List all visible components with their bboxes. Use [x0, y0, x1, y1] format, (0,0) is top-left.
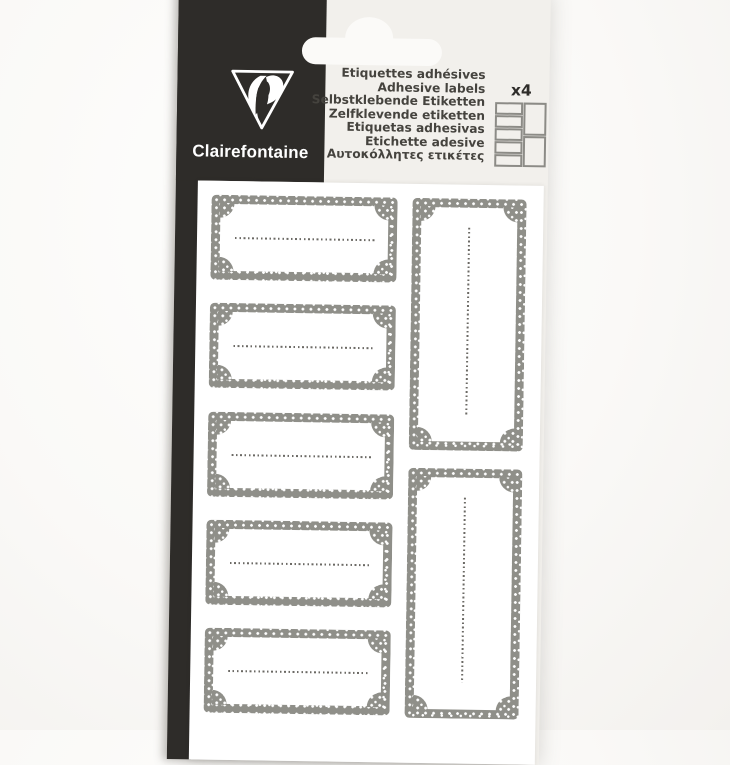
blank-writing-line — [461, 498, 466, 683]
label-corner-ornament — [420, 206, 435, 221]
label-corner-ornament — [212, 690, 227, 705]
label-corner-ornament — [496, 696, 511, 711]
label-corner-ornament — [499, 477, 514, 492]
label-corner-ornament — [368, 584, 383, 599]
brand-wordmark: Clairefontaine — [184, 141, 316, 163]
label-corner-ornament — [367, 692, 382, 707]
brand-panel: Clairefontaine — [176, 0, 327, 182]
product-photo: Clairefontaine Etiquettes adhésives Adhe… — [0, 0, 730, 730]
count-badge: x4 — [493, 81, 549, 100]
label-corner-ornament — [214, 528, 229, 543]
adhesive-label-small — [205, 520, 392, 608]
label-corner-ornament — [503, 207, 518, 222]
label-corner-ornament — [370, 476, 385, 491]
blank-writing-line — [228, 669, 368, 673]
label-corner-ornament — [213, 636, 228, 651]
label-corner-ornament — [217, 365, 232, 380]
sheet-layout-icon — [492, 101, 549, 168]
blank-writing-line — [465, 228, 470, 415]
label-corner-ornament — [371, 422, 386, 437]
label-corner-ornament — [413, 695, 428, 710]
adhesive-label-small — [204, 628, 391, 716]
label-blank-area — [213, 637, 382, 707]
label-corner-ornament — [373, 313, 388, 328]
label-corner-ornament — [218, 311, 233, 326]
blank-writing-line — [232, 454, 372, 458]
blank-writing-line — [233, 345, 373, 349]
adhesive-label-small — [210, 195, 397, 283]
label-corner-ornament — [417, 427, 432, 442]
label-corner-ornament — [215, 474, 230, 489]
label-corner-ornament — [416, 476, 431, 491]
hang-slot — [302, 37, 442, 66]
label-sheet — [189, 180, 544, 764]
label-corner-ornament — [216, 420, 231, 435]
label-blank-area — [219, 204, 388, 274]
label-blank-area — [218, 312, 387, 382]
adhesive-label-small — [209, 303, 396, 391]
label-corner-ornament — [374, 205, 389, 220]
product-title-line: Αυτοκόλλητες ετικέτες — [311, 147, 485, 163]
label-corner-ornament — [500, 428, 515, 443]
blank-writing-line — [230, 561, 370, 565]
package-card: Clairefontaine Etiquettes adhésives Adhe… — [167, 0, 551, 765]
label-blank-area — [214, 529, 383, 599]
label-corner-ornament — [218, 257, 233, 272]
label-blank-area — [216, 421, 385, 491]
label-corner-ornament — [213, 582, 228, 597]
label-corner-ornament — [372, 367, 387, 382]
product-title-block: Etiquettes adhésives Adhesive labels Sel… — [311, 66, 486, 163]
label-blank-area — [418, 207, 518, 442]
label-corner-ornament — [368, 638, 383, 653]
adhesive-label-tall — [409, 198, 527, 452]
blank-writing-line — [235, 237, 375, 241]
label-blank-area — [414, 477, 514, 710]
label-corner-ornament — [219, 203, 234, 218]
label-corner-ornament — [369, 530, 384, 545]
label-corner-ornament — [373, 259, 388, 274]
clairefontaine-logo-icon — [227, 67, 298, 132]
adhesive-label-small — [207, 412, 394, 500]
adhesive-label-tall — [404, 468, 522, 720]
